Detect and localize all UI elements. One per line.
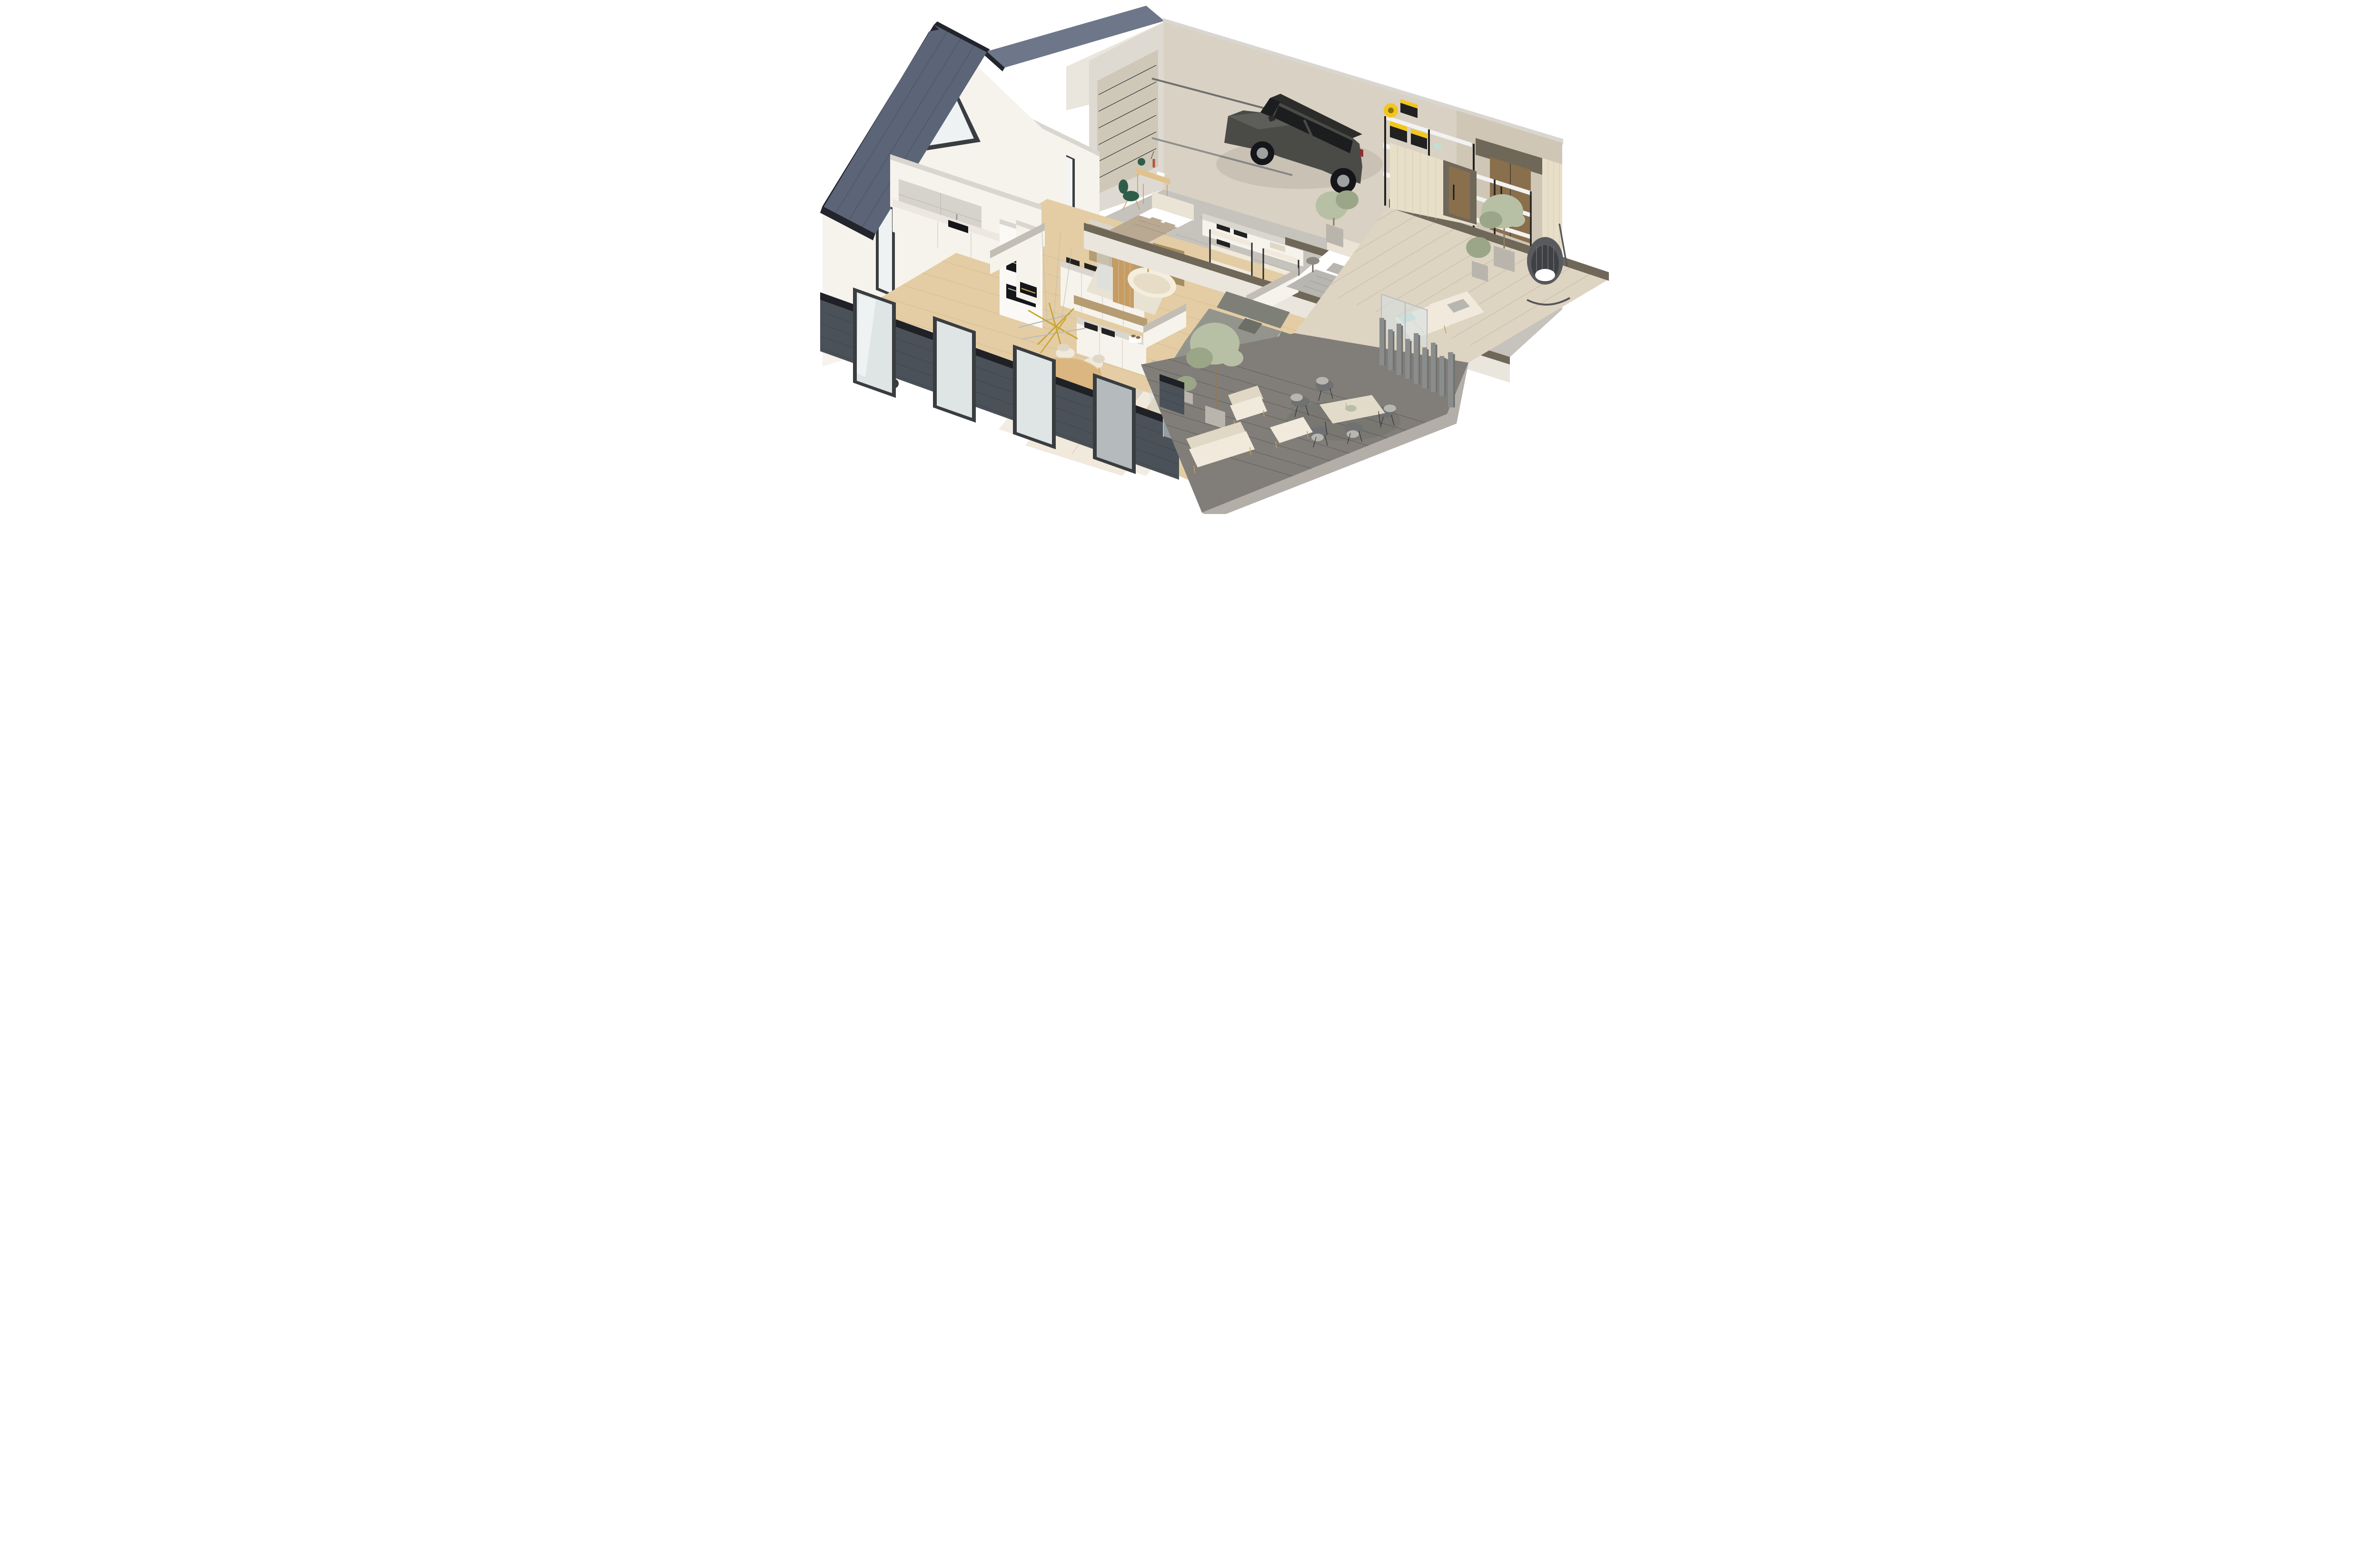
isometric-house-render: Isometric cutaway render of a modern sin… — [733, 0, 1647, 514]
shoe — [1131, 335, 1136, 337]
shoe — [1136, 336, 1140, 339]
car-rim-front — [1257, 148, 1268, 159]
render-stage: Isometric cutaway render of a modern sin… — [733, 0, 1647, 514]
car-taillight — [1359, 148, 1363, 157]
centrepiece — [1345, 405, 1357, 412]
side-table — [1306, 257, 1319, 265]
terrace-door — [1449, 166, 1470, 220]
green-desk-lamp — [1138, 158, 1145, 166]
car-rim-rear — [1337, 175, 1349, 187]
